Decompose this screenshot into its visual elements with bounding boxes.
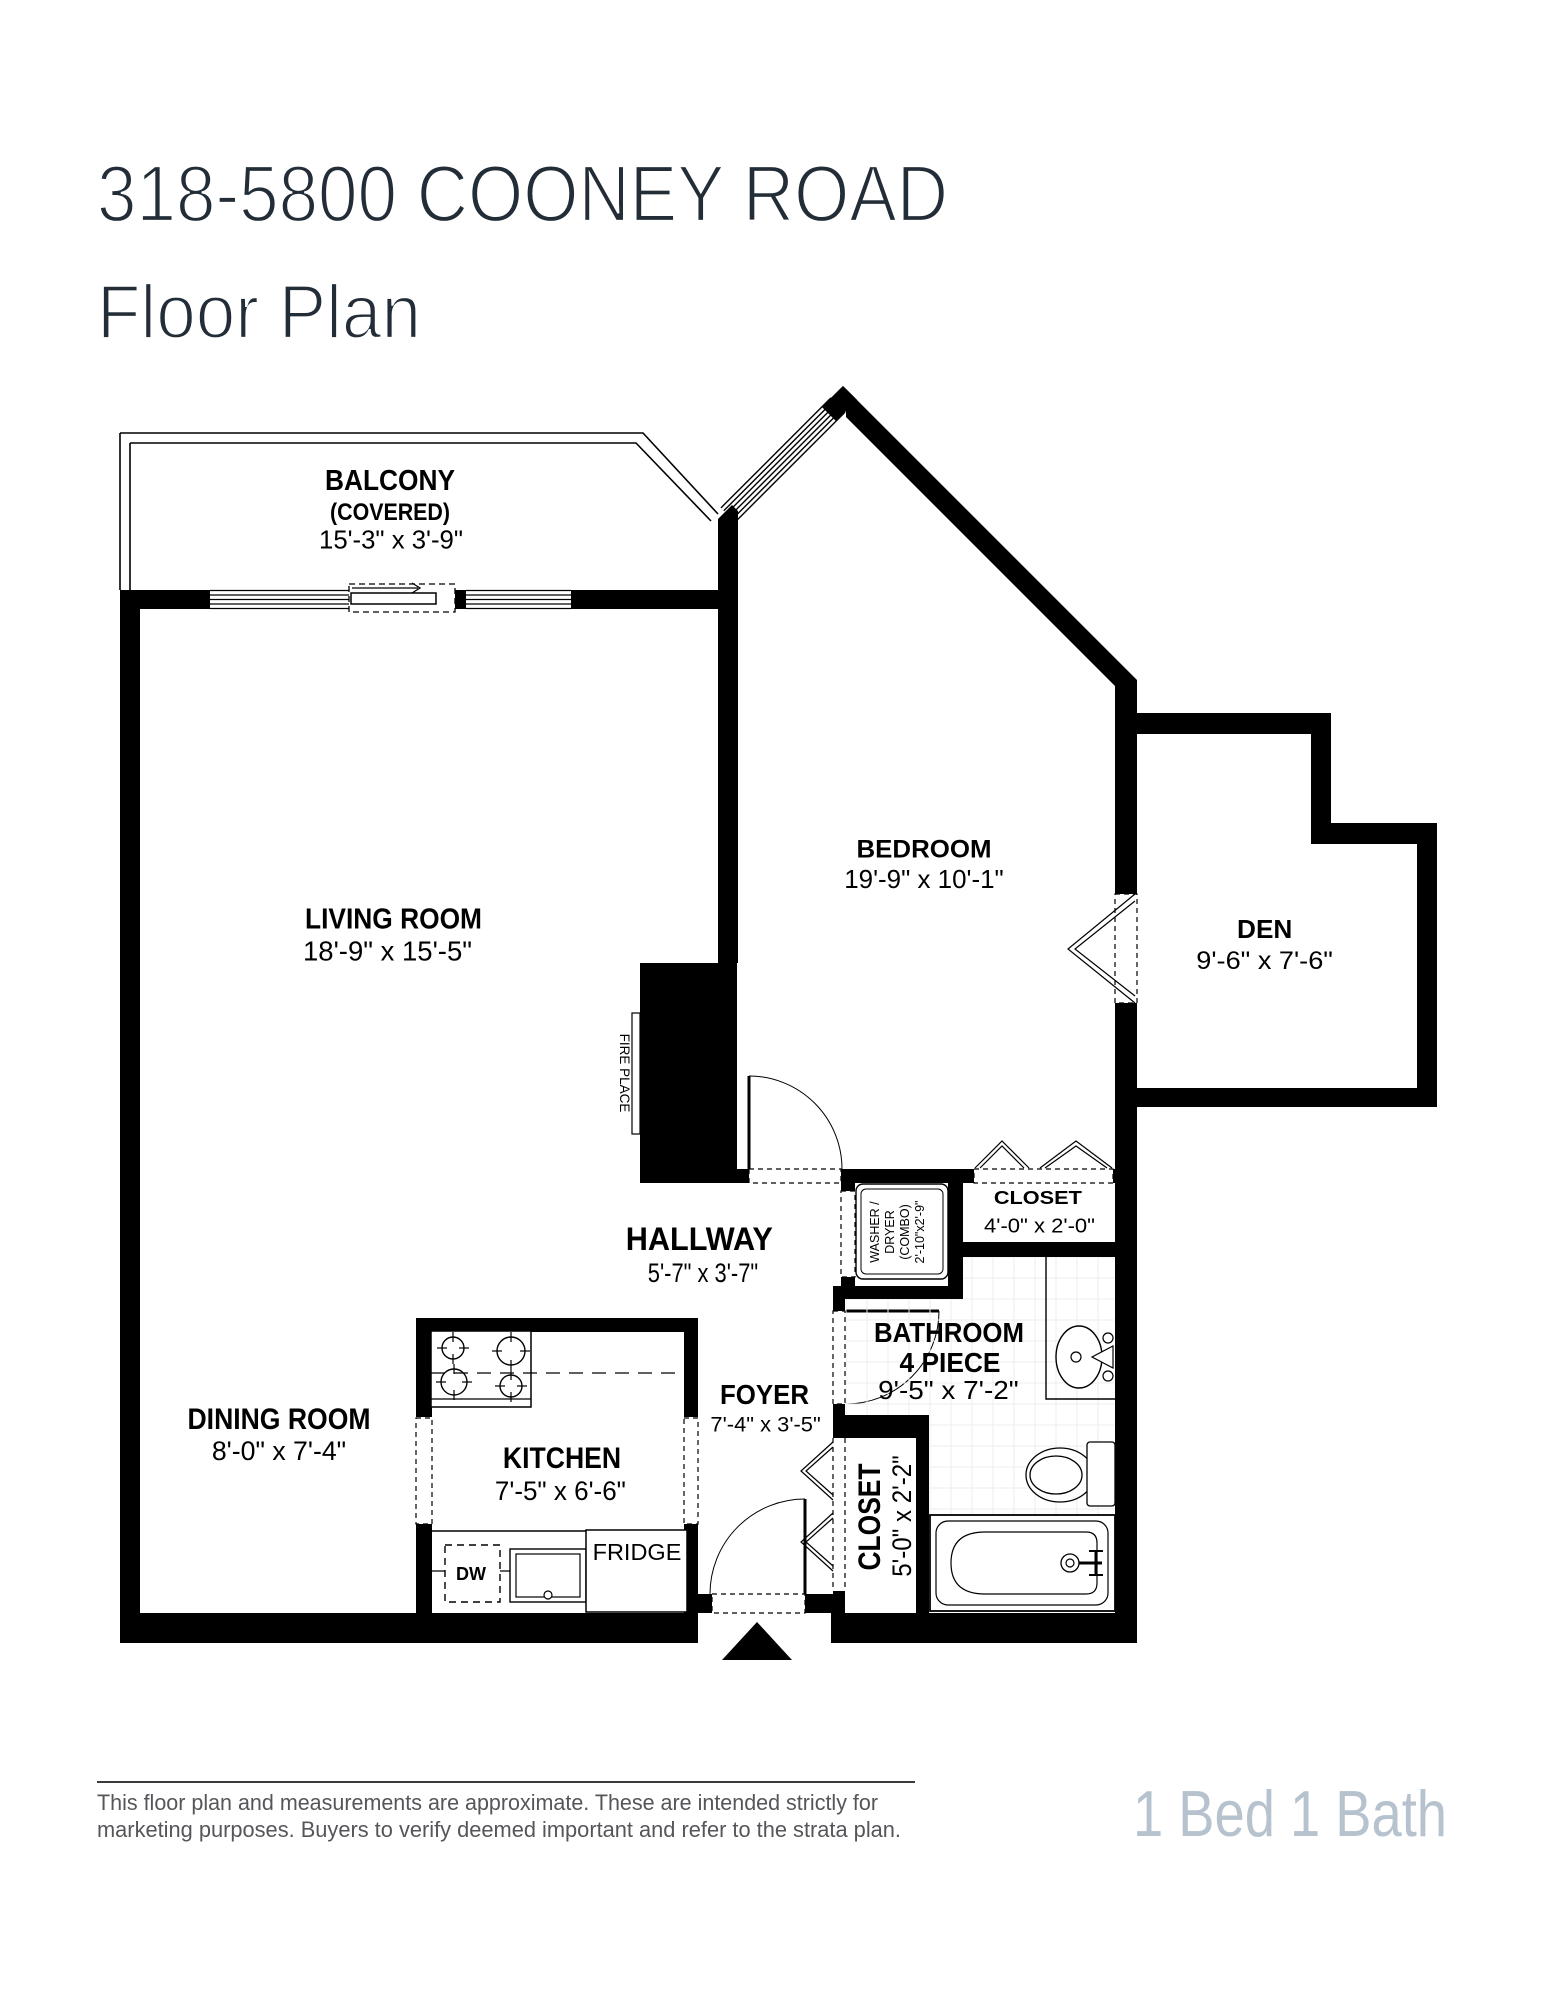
svg-text:4 PIECE: 4 PIECE — [900, 1347, 1001, 1378]
svg-text:18'-9" x 15'-5": 18'-9" x 15'-5" — [303, 935, 472, 966]
svg-text:KITCHEN: KITCHEN — [503, 1442, 621, 1475]
svg-text:DRYER: DRYER — [883, 1210, 897, 1254]
svg-text:7'-4" x 3'-5": 7'-4" x 3'-5" — [710, 1412, 820, 1437]
svg-text:DEN: DEN — [1237, 914, 1292, 944]
svg-text:9'-6" x 7'-6": 9'-6" x 7'-6" — [1196, 947, 1333, 975]
svg-text:7'-5" x 6'-6": 7'-5" x 6'-6" — [495, 1476, 626, 1506]
svg-text:15'-3" x 3'-9": 15'-3" x 3'-9" — [319, 527, 463, 555]
svg-text:DW: DW — [456, 1564, 486, 1584]
svg-text:Floor Plan: Floor Plan — [97, 270, 421, 355]
svg-text:8'-0" x 7'-4": 8'-0" x 7'-4" — [212, 1436, 346, 1466]
svg-text:(COMBO): (COMBO) — [898, 1204, 912, 1260]
svg-text:BALCONY: BALCONY — [325, 465, 455, 497]
svg-text:WASHER /: WASHER / — [868, 1201, 882, 1263]
svg-text:FOYER: FOYER — [720, 1379, 809, 1410]
svg-text:BATHROOM: BATHROOM — [874, 1317, 1024, 1348]
svg-text:318-5800 COONEY ROAD: 318-5800 COONEY ROAD — [97, 149, 948, 238]
svg-text:5'-7" x 3'-7": 5'-7" x 3'-7" — [648, 1258, 758, 1288]
svg-text:19'-9" x 10'-1": 19'-9" x 10'-1" — [844, 864, 1004, 894]
svg-text:This floor plan and measuremen: This floor plan and measurements are app… — [97, 1790, 878, 1815]
svg-text:9'-5" x 7'-2": 9'-5" x 7'-2" — [878, 1375, 1019, 1405]
svg-text:1 Bed 1 Bath: 1 Bed 1 Bath — [1133, 1777, 1447, 1850]
svg-text:marketing purposes. Buyers to: marketing purposes. Buyers to verify dee… — [97, 1817, 901, 1842]
svg-text:CLOSET: CLOSET — [852, 1464, 887, 1571]
svg-text:HALLWAY: HALLWAY — [626, 1221, 773, 1257]
svg-text:FIRE PLACE: FIRE PLACE — [617, 1034, 632, 1113]
svg-text:5'-0" x 2'-2": 5'-0" x 2'-2" — [887, 1455, 917, 1577]
svg-text:DINING ROOM: DINING ROOM — [188, 1403, 371, 1436]
svg-text:CLOSET: CLOSET — [994, 1187, 1083, 1208]
svg-text:4'-0" x 2'-0": 4'-0" x 2'-0" — [984, 1215, 1095, 1237]
svg-text:(COVERED): (COVERED) — [330, 499, 450, 526]
svg-text:LIVING ROOM: LIVING ROOM — [305, 903, 482, 935]
svg-text:2'-10"x2'-9": 2'-10"x2'-9" — [913, 1201, 927, 1264]
svg-text:BEDROOM: BEDROOM — [857, 836, 992, 864]
svg-text:FRIDGE: FRIDGE — [593, 1539, 682, 1565]
